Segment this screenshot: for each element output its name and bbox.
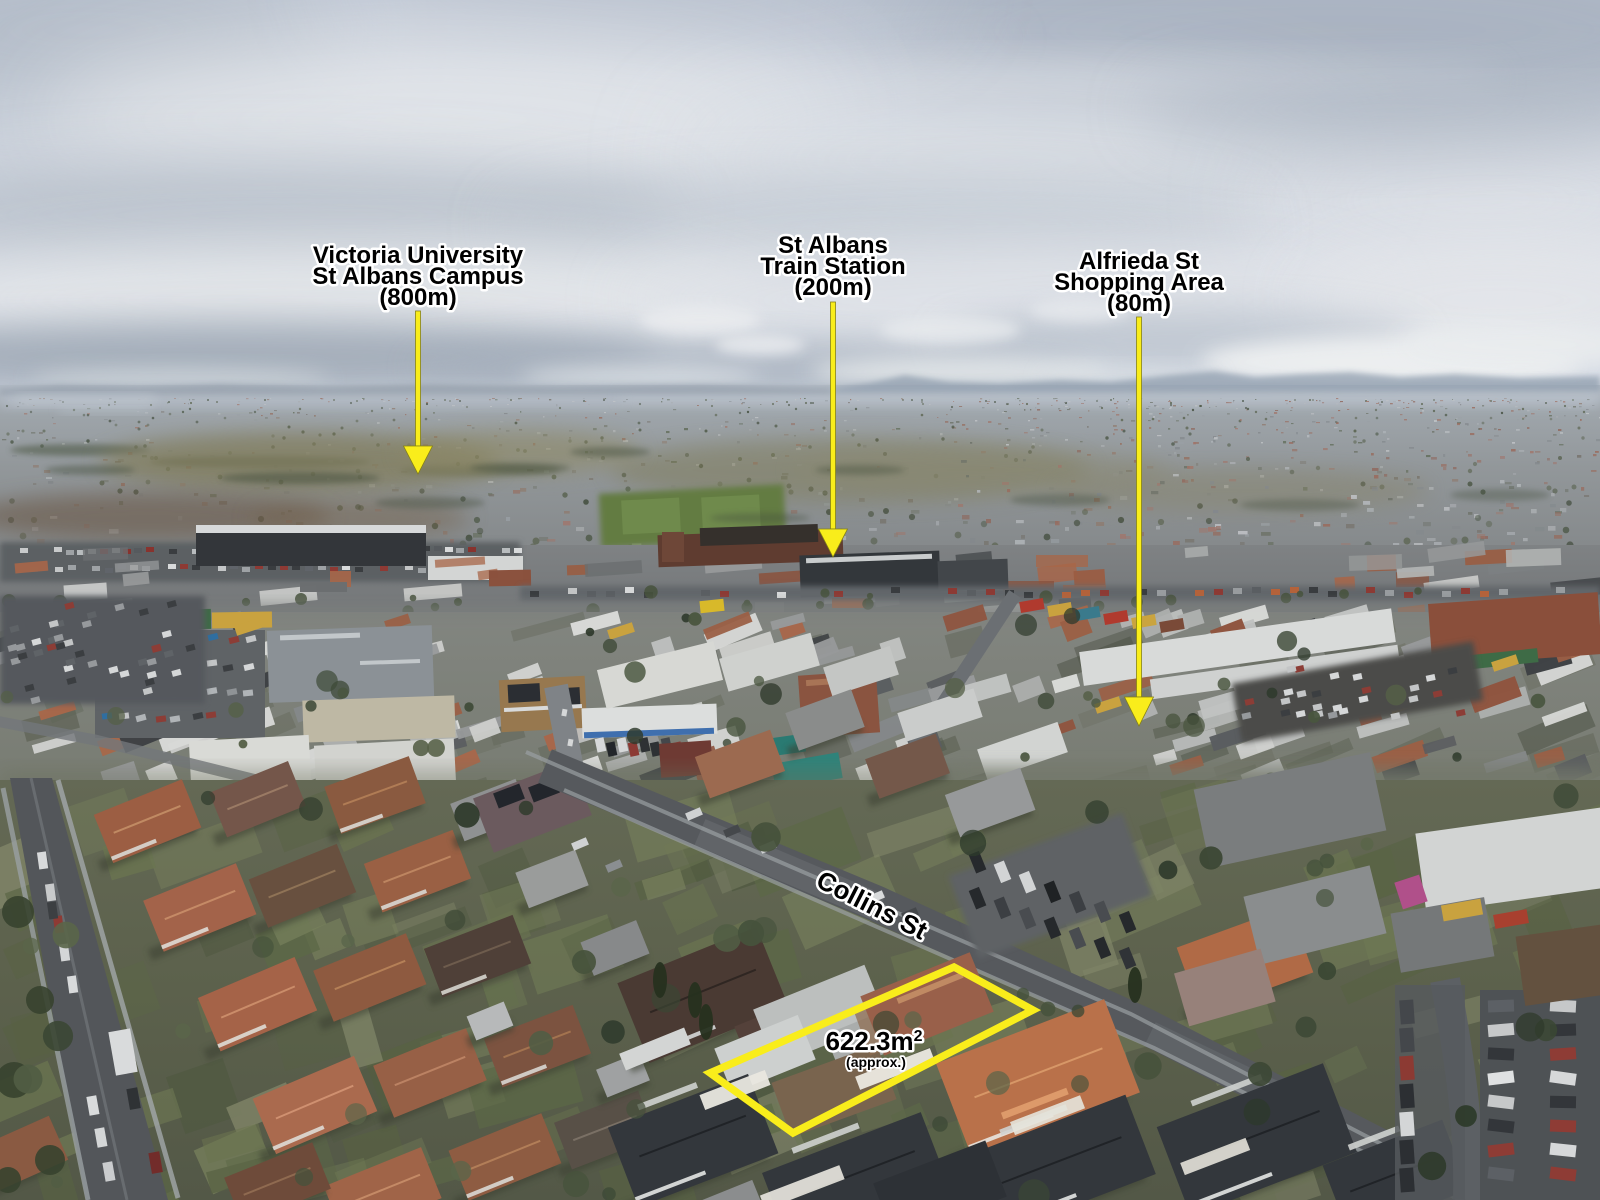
svg-text:(approx.): (approx.) xyxy=(846,1054,906,1070)
svg-text:(800m): (800m) xyxy=(379,284,456,311)
svg-text:(200m): (200m) xyxy=(794,274,871,301)
svg-text:622.3m2: 622.3m2 xyxy=(825,1026,922,1056)
svg-text:(80m): (80m) xyxy=(1107,290,1171,317)
